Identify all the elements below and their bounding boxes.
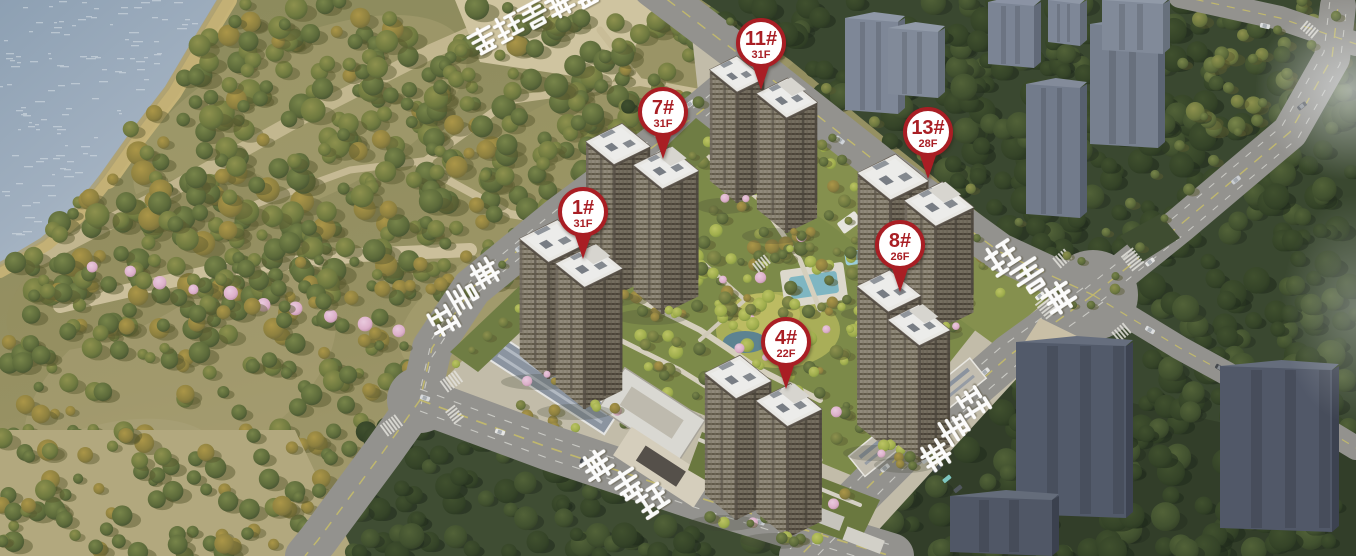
svg-text:4#: 4#: [775, 327, 797, 349]
svg-text:31F: 31F: [574, 218, 593, 230]
svg-text:8#: 8#: [889, 230, 911, 252]
svg-text:31F: 31F: [654, 118, 673, 130]
svg-text:31F: 31F: [752, 49, 771, 61]
svg-text:22F: 22F: [777, 348, 796, 360]
svg-text:26F: 26F: [891, 251, 910, 263]
svg-text:13#: 13#: [911, 117, 944, 139]
svg-text:1#: 1#: [572, 197, 594, 219]
svg-text:7#: 7#: [652, 97, 674, 119]
svg-text:28F: 28F: [919, 138, 938, 150]
svg-text:11#: 11#: [745, 28, 777, 50]
